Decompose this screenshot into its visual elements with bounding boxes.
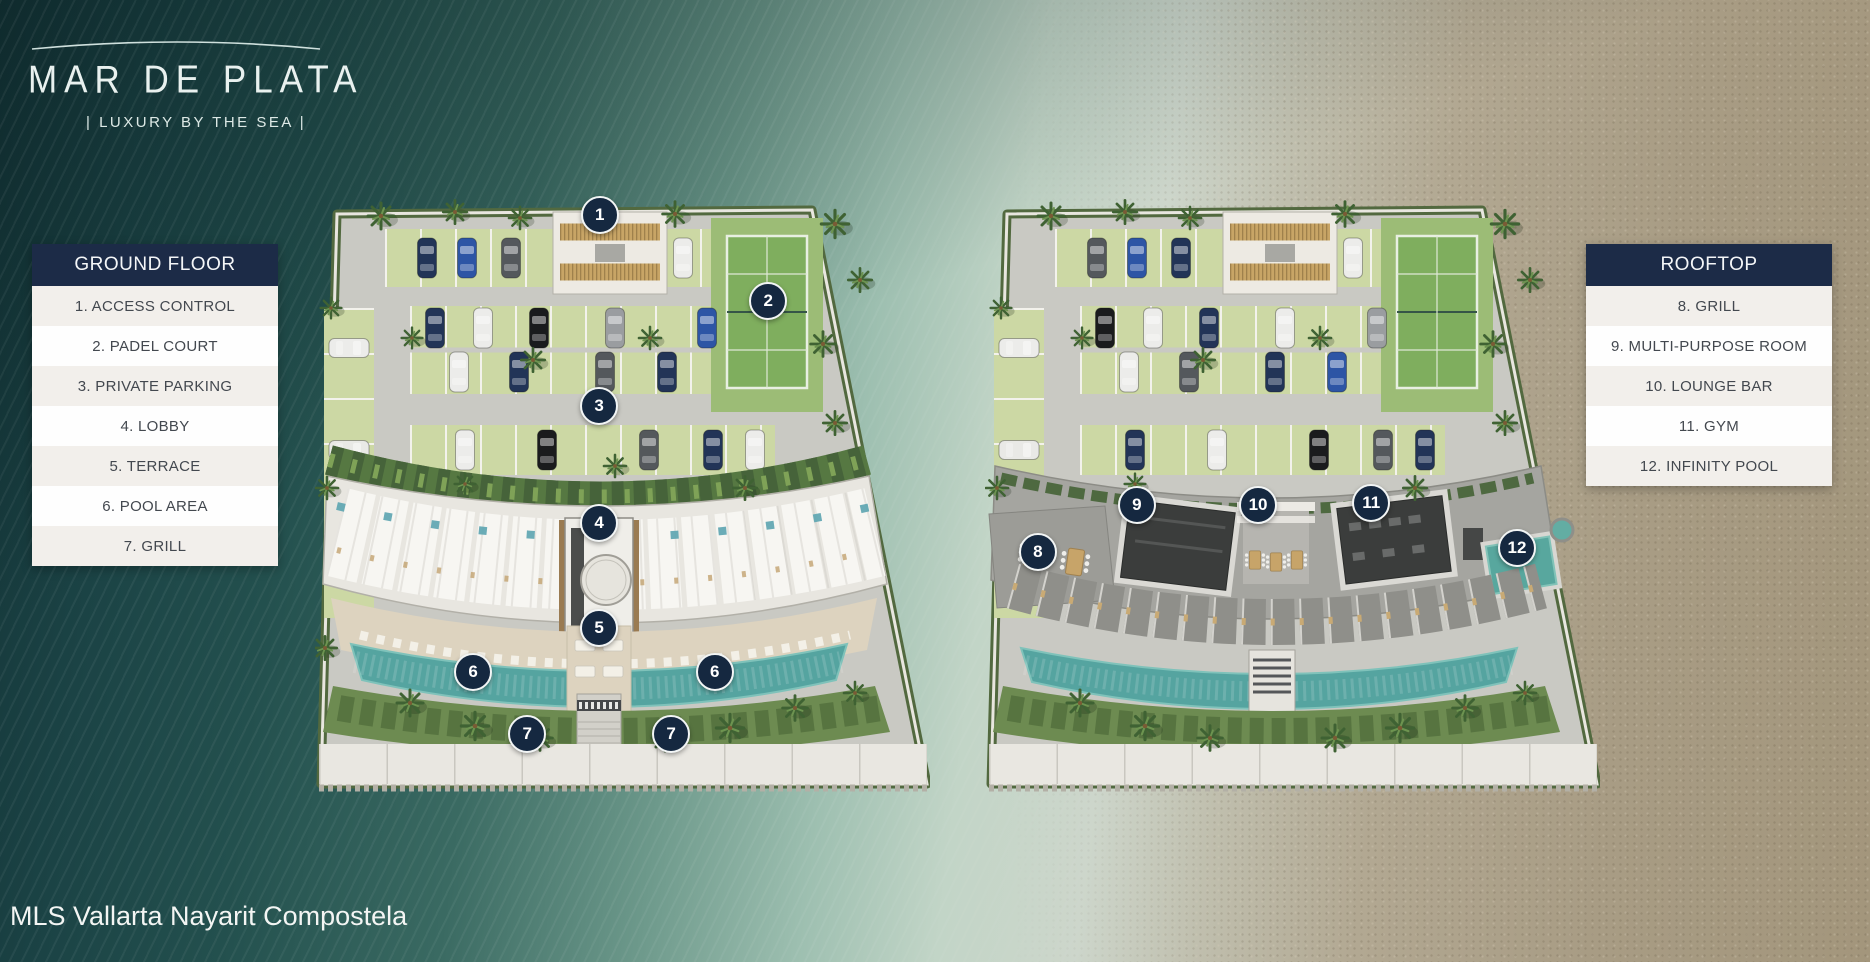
brand-logo: MAR DE PLATA | LUXURY BY THE SEA | <box>28 34 364 131</box>
gym <box>1330 489 1458 591</box>
legend-ground-floor: GROUND FLOOR 1. ACCESS CONTROL2. PADEL C… <box>32 244 278 566</box>
brand-title: MAR DE PLATA <box>28 58 364 103</box>
legend-rows: 8. GRILL9. MULTI-PURPOSE ROOM10. LOUNGE … <box>1586 286 1832 486</box>
logo-curve <box>28 34 324 52</box>
legend-row: 12. INFINITY POOL <box>1586 446 1832 486</box>
plan-marker-1: 1 <box>581 196 619 234</box>
legend-row: 2. PADEL COURT <box>32 326 278 366</box>
plan-marker-9: 9 <box>1118 486 1156 524</box>
legend-title: ROOFTOP <box>1586 244 1832 286</box>
plan-marker-7: 7 <box>652 715 690 753</box>
legend-row: 6. POOL AREA <box>32 486 278 526</box>
rooftop-plan: 89101112 <box>985 188 1600 806</box>
brand-tagline: | LUXURY BY THE SEA | <box>86 114 364 131</box>
site-plan-page: { "brand": { "title": "MAR DE PLATA", "t… <box>0 0 1870 962</box>
plan-marker-10: 10 <box>1239 486 1277 524</box>
legend-row: 10. LOUNGE BAR <box>1586 366 1832 406</box>
ground-floor-render <box>315 188 930 806</box>
legend-rows: 1. ACCESS CONTROL2. PADEL COURT3. PRIVAT… <box>32 286 278 566</box>
ground-floor-plan: 123456677 <box>315 188 930 806</box>
legend-row: 4. LOBBY <box>32 406 278 446</box>
rooftop-render <box>985 188 1600 806</box>
legend-row: 11. GYM <box>1586 406 1832 446</box>
legend-title: GROUND FLOOR <box>32 244 278 286</box>
plan-marker-5: 5 <box>580 609 618 647</box>
legend-row: 7. GRILL <box>32 526 278 566</box>
plan-marker-7: 7 <box>508 715 546 753</box>
plan-marker-6: 6 <box>454 653 492 691</box>
plan-marker-2: 2 <box>749 282 787 320</box>
access-control-structure <box>1223 212 1337 294</box>
plan-marker-12: 12 <box>1498 529 1536 567</box>
legend-rooftop: ROOFTOP 8. GRILL9. MULTI-PURPOSE ROOM10.… <box>1586 244 1832 486</box>
plan-marker-8: 8 <box>1019 533 1057 571</box>
legend-row: 5. TERRACE <box>32 446 278 486</box>
legend-row: 3. PRIVATE PARKING <box>32 366 278 406</box>
plan-marker-3: 3 <box>580 387 618 425</box>
plan-marker-6: 6 <box>696 653 734 691</box>
legend-row: 1. ACCESS CONTROL <box>32 286 278 326</box>
plan-marker-4: 4 <box>580 504 618 542</box>
padel-court <box>1381 218 1493 412</box>
legend-row: 8. GRILL <box>1586 286 1832 326</box>
legend-row: 9. MULTI-PURPOSE ROOM <box>1586 326 1832 366</box>
plan-marker-11: 11 <box>1352 484 1390 522</box>
footer-caption: MLS Vallarta Nayarit Compostela <box>10 901 407 932</box>
